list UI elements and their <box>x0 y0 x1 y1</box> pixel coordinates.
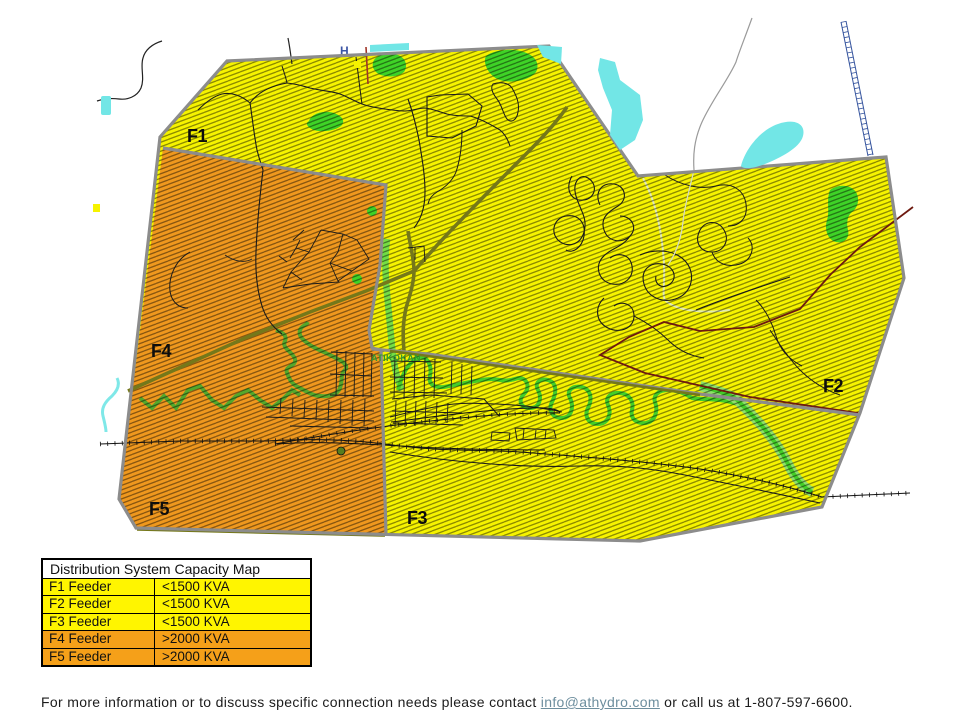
svg-text:ATIKOKAN: ATIKOKAN <box>371 353 421 363</box>
